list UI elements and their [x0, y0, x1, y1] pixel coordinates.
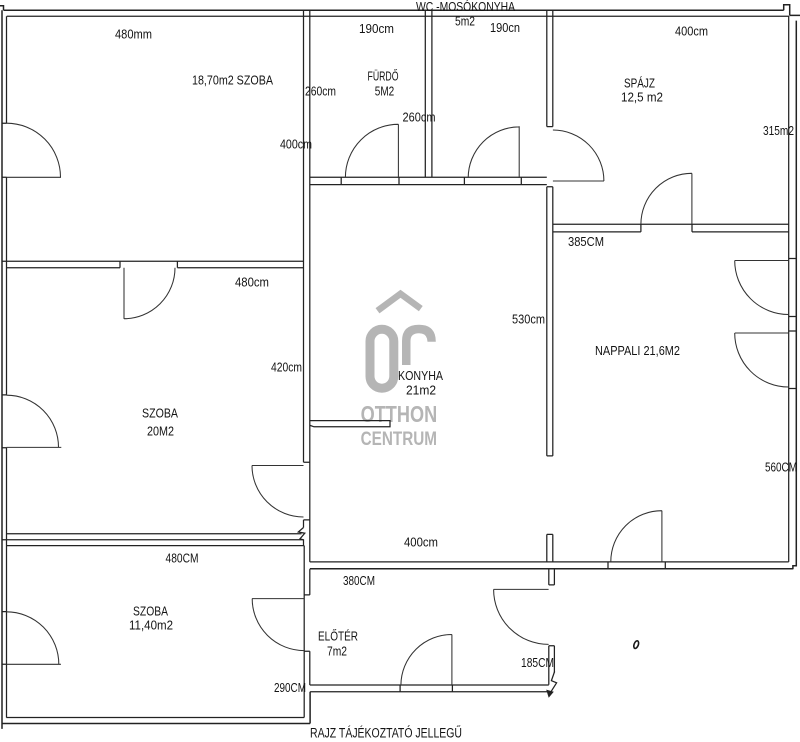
svg-text:20M2: 20M2	[147, 423, 174, 438]
svg-text:400cm: 400cm	[280, 136, 312, 151]
svg-text:21m2: 21m2	[406, 382, 436, 397]
svg-text:ELŐTÉR: ELŐTÉR	[318, 628, 358, 643]
svg-text:290CM: 290CM	[274, 680, 306, 695]
svg-text:480mm: 480mm	[115, 27, 152, 42]
svg-text:260cm: 260cm	[403, 109, 436, 124]
svg-text:260cm: 260cm	[305, 84, 336, 99]
svg-text:12,5 m2: 12,5 m2	[621, 90, 663, 105]
svg-text:WC -MOSÓKONYHA: WC -MOSÓKONYHA	[416, 0, 515, 14]
svg-text:5m2: 5m2	[455, 14, 475, 29]
svg-text:18,70m2 SZOBA: 18,70m2 SZOBA	[192, 72, 273, 87]
svg-text:315m2: 315m2	[763, 123, 794, 138]
svg-text:480CM: 480CM	[166, 551, 199, 566]
svg-text:SZOBA: SZOBA	[142, 405, 178, 420]
svg-text:560CM: 560CM	[765, 459, 797, 474]
svg-text:OTTHON: OTTHON	[361, 401, 438, 427]
svg-text:SPÁJZ: SPÁJZ	[624, 75, 655, 90]
svg-text:SZOBA: SZOBA	[133, 603, 168, 618]
svg-text:7m2: 7m2	[327, 643, 347, 658]
svg-text:190cm: 190cm	[359, 21, 394, 36]
svg-text:530cm: 530cm	[512, 311, 545, 326]
svg-text:385CM: 385CM	[568, 234, 604, 249]
svg-text:420cm: 420cm	[271, 359, 302, 374]
svg-text:FÜRDŐ: FÜRDŐ	[368, 69, 399, 84]
svg-text:185CM: 185CM	[521, 655, 554, 670]
svg-text:KONYHA: KONYHA	[398, 368, 443, 383]
svg-text:380CM: 380CM	[343, 573, 375, 588]
svg-text:5M2: 5M2	[375, 84, 395, 99]
svg-text:NAPPALI 21,6M2: NAPPALI 21,6M2	[595, 343, 680, 358]
svg-text:RAJZ TÁJÉKOZTATÓ JELLEGŰ: RAJZ TÁJÉKOZTATÓ JELLEGŰ	[310, 726, 462, 741]
svg-text:480cm: 480cm	[235, 274, 269, 289]
svg-text:CENTRUM: CENTRUM	[361, 428, 437, 450]
svg-text:190cn: 190cn	[490, 20, 520, 35]
svg-text:11,40m2: 11,40m2	[129, 617, 173, 632]
svg-text:400cm: 400cm	[675, 24, 708, 39]
svg-text:400cm: 400cm	[404, 535, 438, 550]
